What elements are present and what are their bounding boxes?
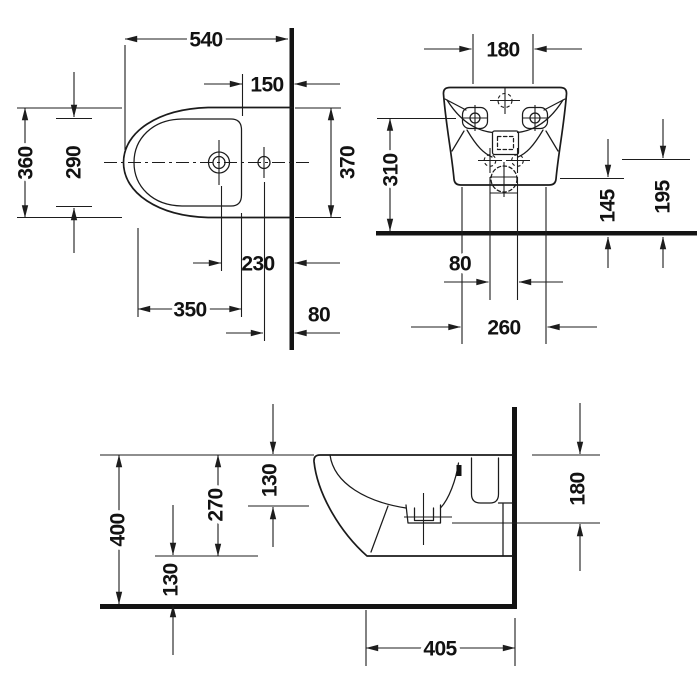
- side-wall-section: [512, 407, 517, 604]
- dim-label: 290: [63, 146, 86, 179]
- dim-plan-tap-to-wall: 230: [193, 186, 340, 276]
- dim-label: 310: [380, 153, 403, 186]
- plan-view: 540 150 360 290 370: [15, 28, 360, 350]
- dim-side-rim-to-outlet: 180: [567, 403, 590, 571]
- dim-label: 145: [597, 188, 620, 222]
- dim-front-fixing-spacing: 260: [411, 317, 597, 340]
- dim-plan-basin-width: 290: [56, 72, 92, 253]
- dim-side-floor-clearance: 130: [160, 505, 183, 655]
- front-drain-circle: [491, 162, 517, 197]
- side-tap-hole-section: [457, 465, 462, 476]
- front-fixing-hole-left: [463, 105, 489, 131]
- dim-label: 230: [241, 253, 274, 276]
- dim-side-rim-to-underside: 270: [205, 455, 228, 556]
- dim-front-fixing-hole-height: 310: [377, 119, 456, 232]
- front-drain-box-inner: [498, 137, 514, 150]
- dim-label: 130: [259, 464, 282, 497]
- technical-drawing-page: 540 150 360 290 370: [0, 0, 700, 700]
- dim-label: 130: [160, 563, 183, 596]
- front-outlet-hole-left: [478, 148, 502, 173]
- front-fixing-hole-right: [522, 105, 548, 131]
- dim-label: 360: [15, 146, 38, 179]
- dim-label: 80: [308, 304, 330, 327]
- dim-plan-rim-to-wall: 150: [204, 74, 340, 116]
- plan-wall-section: [290, 28, 295, 350]
- dim-label: 400: [107, 513, 130, 546]
- front-tap-hole: [490, 87, 520, 114]
- dim-side-rim-to-basin-depth: 130: [259, 404, 282, 547]
- dim-label: 350: [173, 299, 206, 322]
- side-basin-detail: [330, 455, 512, 556]
- side-bidet-outline: [314, 455, 512, 556]
- side-view: 400 270 130 130 180 405: [100, 403, 600, 666]
- dim-front-drain-center-height: 145: [560, 139, 624, 268]
- front-drain-box-outer: [493, 131, 519, 155]
- dim-label: 80: [449, 253, 471, 276]
- dim-label: 405: [423, 638, 457, 661]
- dim-label: 540: [189, 29, 222, 52]
- dim-front-outlet-height: 195: [622, 119, 690, 268]
- front-view: 180 310 145 195 80: [376, 34, 697, 344]
- dim-label: 180: [567, 472, 590, 505]
- dim-front-tap-deck-width: 180: [424, 34, 582, 84]
- dim-label: 370: [337, 146, 360, 179]
- front-floor-section: [376, 231, 697, 236]
- dim-side-rim-height: 400: [107, 455, 130, 604]
- dim-plan-basin-length: 350: [138, 213, 242, 322]
- dim-label: 260: [487, 317, 520, 340]
- dim-side-projection: 405: [366, 610, 515, 666]
- side-floor-section: [100, 604, 517, 609]
- bidet-dimension-drawing: 540 150 360 290 370: [0, 0, 700, 700]
- dim-label: 150: [250, 74, 283, 97]
- dim-label: 270: [205, 488, 228, 521]
- dim-label: 180: [486, 39, 519, 62]
- dim-label: 195: [652, 179, 675, 213]
